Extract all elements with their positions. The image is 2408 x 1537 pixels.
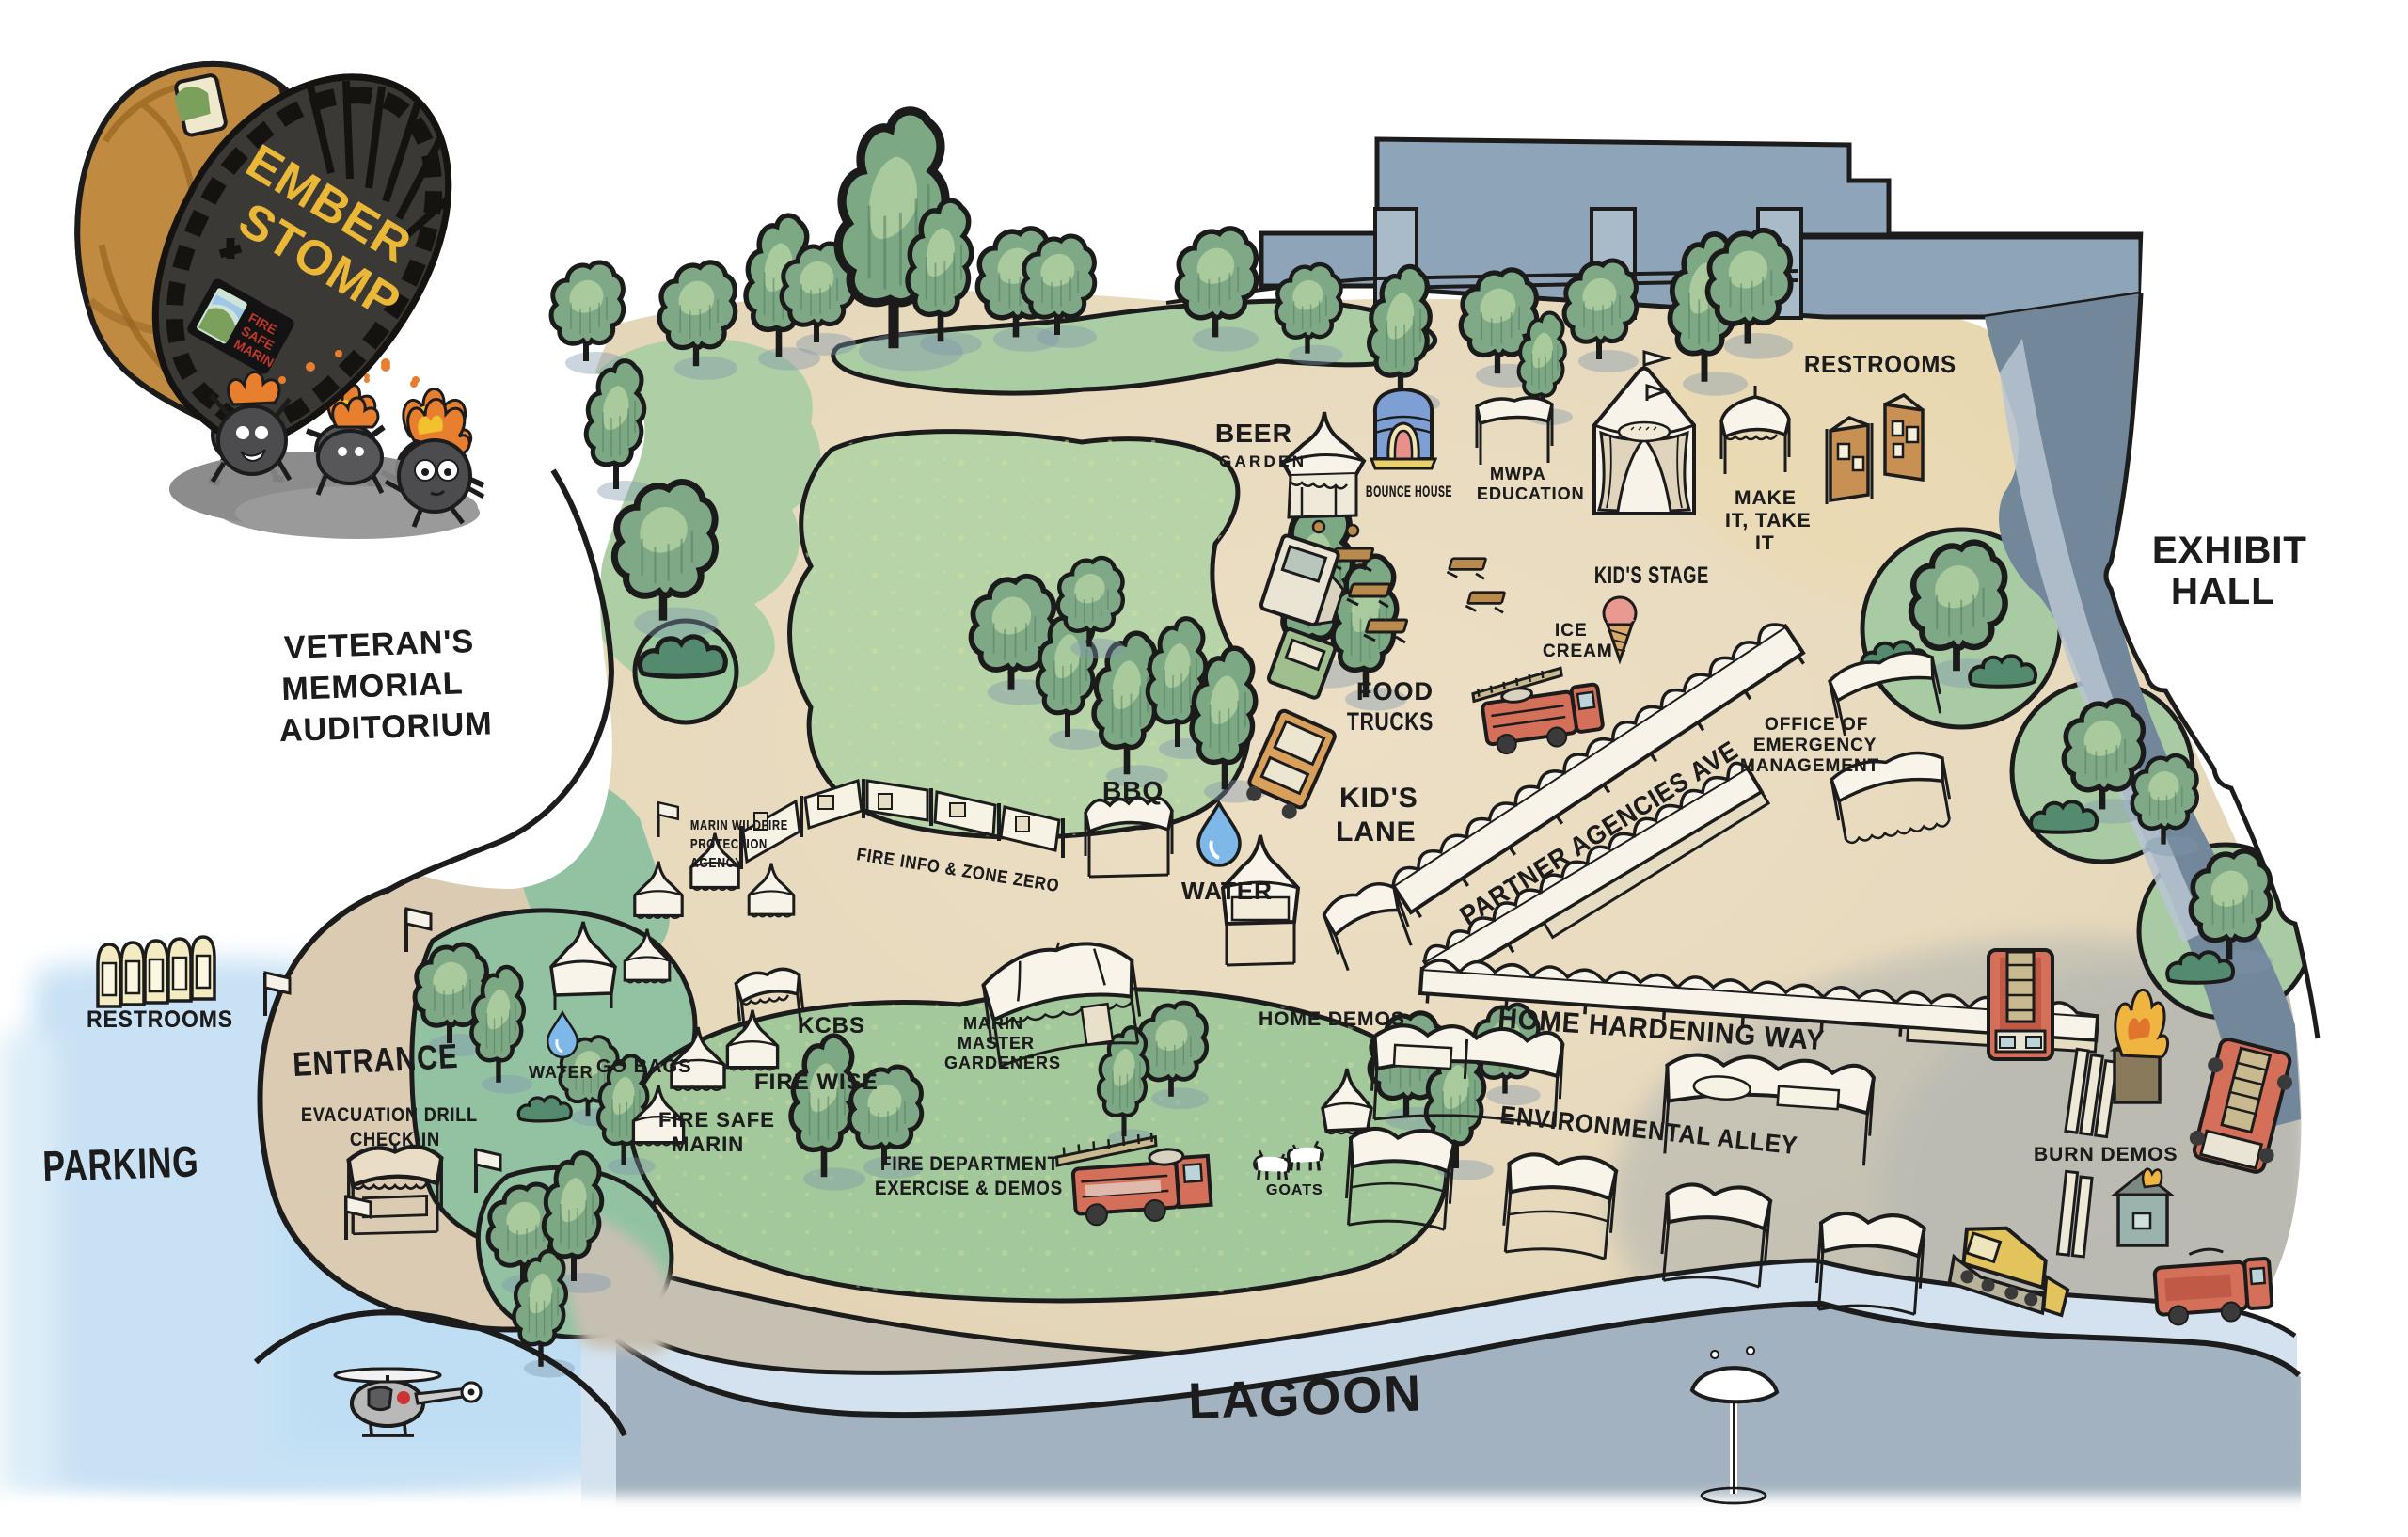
svg-text:BOUNCE HOUSE: BOUNCE HOUSE bbox=[1366, 483, 1452, 500]
svg-text:HOME DEMOS: HOME DEMOS bbox=[1259, 1008, 1405, 1030]
svg-text:LAGOON: LAGOON bbox=[1187, 1365, 1422, 1430]
svg-text:BURN DEMOS: BURN DEMOS bbox=[2034, 1144, 2178, 1165]
svg-text:BEER: BEER bbox=[1215, 419, 1292, 448]
svg-text:KID'S: KID'S bbox=[1339, 783, 1418, 814]
svg-text:MANAGEMENT: MANAGEMENT bbox=[1740, 756, 1879, 776]
svg-text:MEMORIAL: MEMORIAL bbox=[281, 665, 464, 707]
svg-text:FOOD: FOOD bbox=[1356, 677, 1434, 705]
svg-text:BBQ: BBQ bbox=[1102, 776, 1164, 805]
svg-text:RESTROOMS: RESTROOMS bbox=[1804, 350, 1956, 378]
svg-text:OFFICE OF: OFFICE OF bbox=[1765, 715, 1868, 735]
svg-text:EMERGENCY: EMERGENCY bbox=[1753, 736, 1877, 755]
svg-text:EXHIBIT: EXHIBIT bbox=[2152, 530, 2307, 571]
svg-text:RESTROOMS: RESTROOMS bbox=[87, 1006, 233, 1033]
svg-text:AGENCY: AGENCY bbox=[690, 855, 743, 871]
svg-text:FIRE WISE: FIRE WISE bbox=[754, 1070, 879, 1095]
svg-text:HALL: HALL bbox=[2171, 571, 2275, 612]
svg-text:IT: IT bbox=[1755, 532, 1775, 554]
svg-text:TRUCKS: TRUCKS bbox=[1347, 707, 1434, 736]
svg-text:MARIN: MARIN bbox=[672, 1133, 744, 1156]
svg-text:VETERAN'S: VETERAN'S bbox=[283, 624, 474, 666]
svg-text:MAKE: MAKE bbox=[1735, 487, 1797, 509]
svg-text:WATER: WATER bbox=[529, 1063, 594, 1082]
svg-text:EXERCISE & DEMOS: EXERCISE & DEMOS bbox=[875, 1178, 1063, 1199]
svg-text:MARIN WILDFIRE: MARIN WILDFIRE bbox=[690, 817, 788, 833]
svg-text:ICE: ICE bbox=[1555, 621, 1588, 641]
svg-text:MWPA: MWPA bbox=[1490, 465, 1546, 483]
svg-text:EVACUATION DRILL: EVACUATION DRILL bbox=[301, 1104, 478, 1126]
svg-text:GARDEN: GARDEN bbox=[1219, 452, 1306, 470]
svg-text:FIRE DEPARTMENT: FIRE DEPARTMENT bbox=[880, 1153, 1059, 1175]
svg-text:GOATS: GOATS bbox=[1266, 1182, 1323, 1198]
svg-text:IT, TAKE: IT, TAKE bbox=[1725, 510, 1812, 531]
svg-text:GO BAGS: GO BAGS bbox=[596, 1056, 691, 1077]
svg-text:MARIN: MARIN bbox=[963, 1014, 1023, 1033]
svg-text:WATER: WATER bbox=[1181, 877, 1273, 905]
svg-text:KCBS: KCBS bbox=[798, 1013, 865, 1038]
svg-text:AUDITORIUM: AUDITORIUM bbox=[278, 705, 493, 749]
svg-text:KID'S STAGE: KID'S STAGE bbox=[1594, 563, 1709, 589]
svg-text:CREAM: CREAM bbox=[1543, 642, 1613, 661]
svg-text:FIRE SAFE: FIRE SAFE bbox=[658, 1108, 775, 1132]
svg-text:CHECK-IN: CHECK-IN bbox=[350, 1129, 440, 1150]
svg-text:PROTECTION: PROTECTION bbox=[690, 836, 768, 852]
svg-text:PARKING: PARKING bbox=[42, 1136, 200, 1191]
svg-text:MASTER: MASTER bbox=[958, 1034, 1035, 1053]
svg-text:LANE: LANE bbox=[1336, 816, 1417, 848]
svg-text:GARDENERS: GARDENERS bbox=[944, 1054, 1061, 1072]
svg-text:EDUCATION: EDUCATION bbox=[1477, 484, 1585, 503]
